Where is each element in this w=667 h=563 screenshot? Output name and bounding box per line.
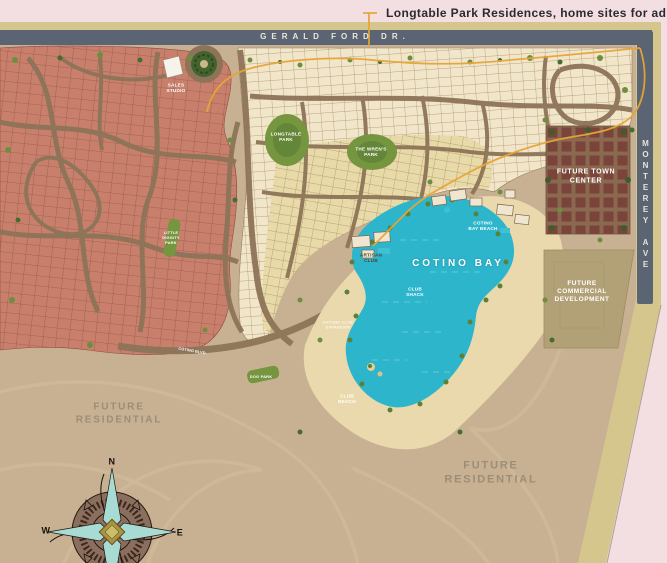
cotino-bay-label: COTINO BAY: [412, 258, 504, 271]
site-plan-page: Longtable Park Residences, home sites fo…: [0, 0, 667, 563]
compass-north-label: N: [109, 456, 116, 467]
wrens-park-label: THE WREN'S PARK: [355, 146, 386, 158]
club-beach-label: CLUB BEACH: [338, 393, 356, 405]
club-shack-label: CLUB SHACK: [406, 286, 424, 298]
monterey-ave-label: MONTEREY AVE: [640, 139, 650, 271]
future-residential-se-label: FUTURE RESIDENTIAL: [444, 459, 537, 487]
future-club-expansion-label: FUTURE CLUB EXPANSION: [323, 320, 353, 330]
map-labels: Longtable Park Residences, home sites fo…: [0, 0, 667, 563]
dog-park-label: DOG PARK: [250, 375, 272, 380]
future-town-center-label: FUTURE TOWN CENTER: [557, 168, 615, 186]
cotino-bay-beach-label: COTINO BAY BEACH: [468, 220, 497, 232]
future-residential-sw-label: FUTURE RESIDENTIAL: [76, 402, 162, 427]
cotino-blvd-label: COTINO BLVD: [178, 346, 206, 355]
gerald-ford-label: GERALD FORD DR.: [260, 32, 410, 42]
longtable-park-label: LONGTABLE PARK: [271, 131, 302, 143]
artisan-club-label: ARTISAN CLUB: [360, 252, 382, 264]
callout-text: Longtable Park Residences, home sites fo…: [386, 6, 667, 21]
little-diggity-park-label: LITTLE DIGGITY PARK: [162, 231, 180, 246]
future-commercial-label: FUTURE COMMERCIAL DEVELOPMENT: [555, 280, 610, 304]
compass-west-label: W: [42, 525, 51, 536]
sales-studio-label: SALES STUDIO: [167, 82, 186, 94]
compass-east-label: E: [177, 527, 183, 538]
